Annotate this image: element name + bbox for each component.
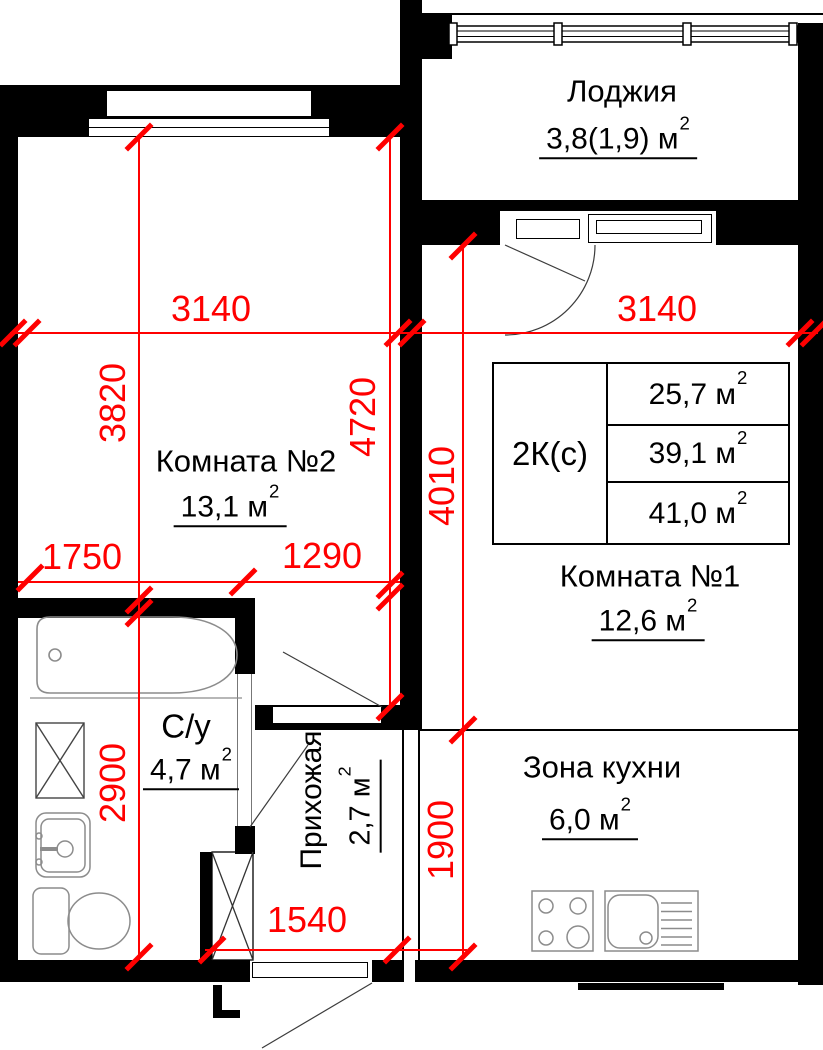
washing-machine: [36, 723, 84, 798]
apartment-area: 39,1 м2: [608, 424, 788, 484]
hallway-label: Прихожая: [295, 730, 329, 869]
dim-label-1900: 1900: [420, 800, 462, 880]
entrance-door-swing: [262, 983, 372, 1048]
dim-line-1750-1290: [18, 581, 400, 583]
dim-line-4010-1900: [462, 245, 464, 958]
dim-line-1540: [205, 949, 467, 951]
hallway-door-swing: [283, 652, 382, 707]
dim-label-1540: 1540: [267, 901, 347, 939]
bathroom-label: С/у: [161, 710, 211, 745]
stove: [532, 891, 593, 951]
loggia-glazing: [449, 23, 798, 45]
dim-label-4720: 4720: [342, 377, 384, 457]
kitchen-sink: [605, 891, 698, 951]
floor-plan: 3140 3140 1750 1290 1540 3820 4720 4010 …: [0, 0, 823, 1050]
dim-line-3820-2900: [138, 137, 140, 960]
dim-label-1750: 1750: [42, 538, 122, 576]
balcony-door-leaf-line: [505, 245, 585, 281]
room2-label: Комната №2: [156, 446, 337, 479]
dim-label-4010: 4010: [421, 446, 463, 526]
dim-line-4720: [389, 137, 391, 707]
dim-label-1290: 1290: [282, 537, 362, 575]
hallway-area: 2,7 м2: [343, 759, 382, 852]
toilet: [33, 888, 130, 954]
living-area: 25,7 м2: [608, 364, 788, 424]
kitchen-label: Зона кухни: [523, 752, 681, 785]
dim-label-2900: 2900: [92, 743, 134, 823]
apartment-type: 2К(с): [494, 364, 608, 543]
bathroom-area: 4,7 м2: [143, 752, 239, 790]
bathtub: [30, 617, 242, 698]
room2-area: 13,1 м2: [174, 489, 287, 527]
dim-label-3140-right: 3140: [617, 290, 697, 328]
bath-sink: [36, 813, 90, 877]
dim-label-3140-left: 3140: [171, 290, 251, 328]
total-area: 41,0 м2: [608, 483, 788, 543]
room1-area: 12,6 м2: [592, 603, 705, 641]
loggia-area: 3,8(1,9) м2: [539, 121, 697, 159]
room1-label: Комната №1: [560, 561, 741, 594]
balcony-door-arc: [505, 245, 595, 335]
loggia-label: Лоджия: [567, 76, 677, 109]
apartment-info-table: 2К(с) 25,7 м2 39,1 м2 41,0 м2: [492, 362, 790, 545]
kitchen-area: 6,0 м2: [542, 802, 638, 840]
dim-label-3820: 3820: [92, 363, 134, 443]
